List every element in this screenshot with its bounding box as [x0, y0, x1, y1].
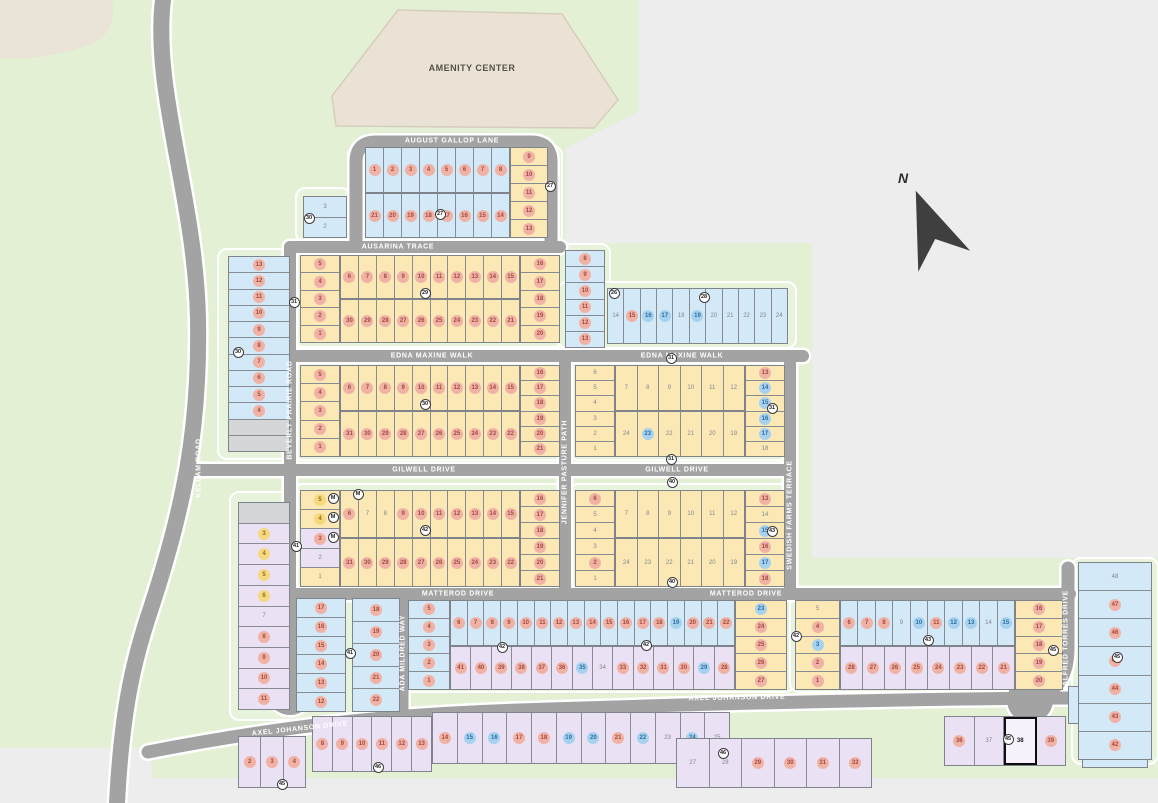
road-marker: 26 — [609, 288, 620, 299]
road-marker: 31 — [289, 297, 300, 308]
road-marker: 42 — [641, 640, 652, 651]
model-home-marker: M — [328, 532, 339, 543]
road-marker: 46 — [373, 762, 384, 773]
street-label-ada-mildred-way: ADA MILDRED WAY — [400, 615, 407, 691]
road-marker: 45 — [277, 779, 288, 790]
road-marker: 27 — [435, 209, 446, 220]
model-home-marker: M — [328, 493, 339, 504]
street-label-jennifer-pasture-path: JENNIFER PASTURE PATH — [562, 420, 569, 524]
street-label-axel-johanson-drive: AXEL JOHANSON DRIVE — [689, 694, 786, 703]
street-label-matterod-drive: MATTEROD DRIVE — [422, 591, 494, 598]
road-marker: 45 — [1003, 734, 1014, 745]
road-marker: 41 — [291, 541, 302, 552]
road-marker: 31 — [666, 353, 677, 364]
street-label-edna-maxine-walk: EDNA MAXINE WALK — [641, 353, 724, 360]
model-home-marker: M — [328, 512, 339, 523]
street-label-edna-maxine-walk: EDNA MAXINE WALK — [391, 353, 474, 360]
road-marker: 30 — [233, 347, 244, 358]
street-label-beverly-prairie-road: BEVERLY PRAIRIE ROAD — [287, 360, 294, 459]
road-marker: 43 — [767, 526, 778, 537]
street-label-matterod-drive: MATTEROD DRIVE — [710, 591, 782, 598]
street-label-august-gallop-lane: AUGUST GALLOP LANE — [405, 138, 499, 145]
road-marker: 31 — [666, 454, 677, 465]
street-label-axel-johanson-drive: AXEL JOHANSON DRIVE — [251, 720, 348, 737]
community-site-map: 1234567821201918171615149101112133254321… — [0, 0, 1158, 803]
street-label-kellam-road: KELLAM ROAD — [196, 438, 203, 497]
street-label-alfred-torres-drive: ALFRED TORRES DRIVE — [1063, 590, 1070, 686]
road-marker: 29 — [420, 288, 431, 299]
road-marker: 27 — [545, 181, 556, 192]
road-marker: 30 — [420, 399, 431, 410]
north-arrow-label: N — [898, 170, 908, 186]
road-marker: 28 — [699, 292, 710, 303]
road-marker: 42 — [420, 525, 431, 536]
road-marker: 31 — [767, 403, 778, 414]
amenity-center-label: AMENITY CENTER — [408, 62, 536, 76]
street-label-swedish-farms-terrace: SWEDISH FARMS TERRACE — [787, 460, 794, 570]
road-marker: 43 — [923, 635, 934, 646]
road-marker: 41 — [345, 648, 356, 659]
street-label-gilwell-drive: GILWELL DRIVE — [392, 467, 455, 474]
street-label-gilwell-drive: GILWELL DRIVE — [645, 467, 708, 474]
street-label-ausarina-trace: AUSARINA TRACE — [362, 244, 435, 251]
road-marker: 45 — [1048, 645, 1059, 656]
road-marker: 42 — [791, 631, 802, 642]
road-marker: 40 — [667, 477, 678, 488]
road-marker: 42 — [497, 642, 508, 653]
road-marker: 45 — [1112, 652, 1123, 663]
labels-layer: AUGUST GALLOP LANEAUSARINA TRACEEDNA MAX… — [0, 0, 1158, 803]
road-marker: 40 — [667, 577, 678, 588]
road-marker: 30 — [304, 213, 315, 224]
road-marker: 46 — [718, 748, 729, 759]
model-home-marker: M — [353, 489, 364, 500]
